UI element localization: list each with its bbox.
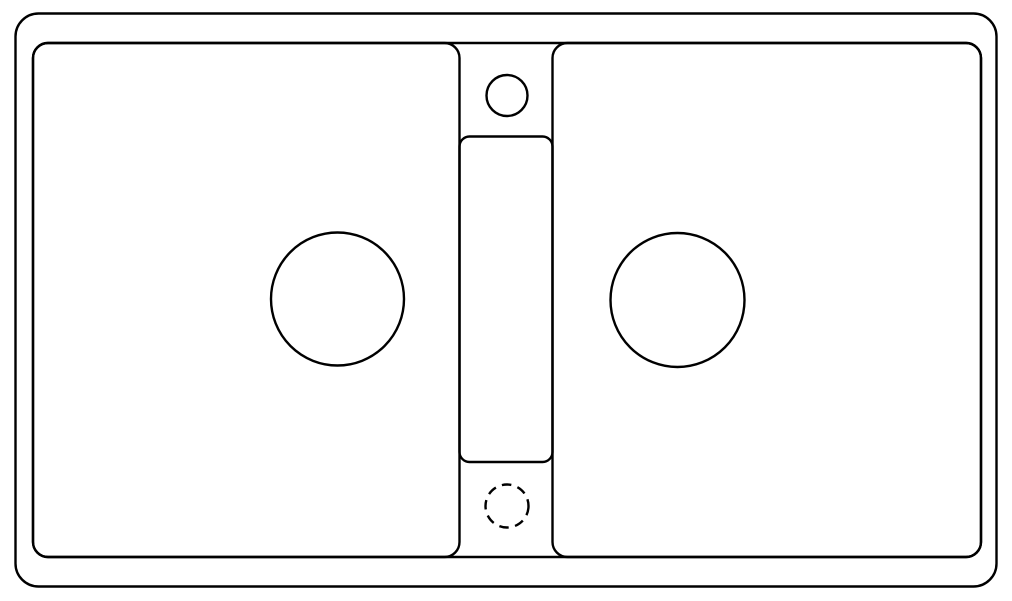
sink-inner-deck-outline	[33, 43, 981, 557]
left-bowl-outline	[33, 43, 460, 557]
right-bowl-outline	[553, 43, 982, 557]
sink-technical-drawing	[0, 0, 1012, 601]
right-bowl-drain-circle	[611, 233, 745, 367]
left-bowl-drain-circle	[271, 233, 404, 366]
center-panel-outline	[460, 137, 553, 463]
sink-drawing-shapes	[16, 14, 997, 587]
sink-technical-drawing-page	[0, 0, 1012, 601]
sink-outer-rim-outline	[16, 14, 997, 587]
tap-hole-circle	[487, 75, 528, 116]
optional-hole-dashed-circle	[486, 485, 529, 528]
